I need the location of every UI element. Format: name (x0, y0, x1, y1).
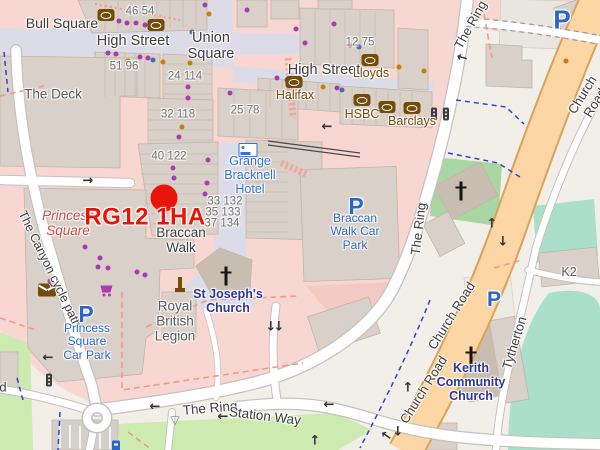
building-label-k2: K2 (561, 265, 576, 279)
poi-dot (190, 30, 195, 35)
oneway-arrow-icon: ← (378, 428, 394, 445)
street-label-the-ring-south: The Ring (182, 398, 238, 418)
parking-meter-icon (112, 441, 120, 450)
poi-dot (117, 19, 122, 24)
poi-dot (125, 21, 130, 26)
poi-dot (207, 12, 212, 17)
parking-label-princess-square: Princess Square Car Park (63, 322, 110, 362)
housenumber-25-78: 25 78 (231, 105, 260, 118)
retail-label-princess-square: Princess Square (42, 208, 94, 238)
poi-dot (205, 181, 210, 186)
poi-dot (357, 45, 362, 50)
street-label-partial-d: d (0, 381, 7, 396)
bank-label-halifax: Halifax (276, 88, 314, 102)
parking-label-braccan-walk: Braccan Walk Car Park (331, 212, 380, 252)
church-cross-icon (455, 182, 468, 201)
housenumber-46-54: 46 54 (126, 6, 155, 19)
church-label-st-josephs: St Joseph's Church (193, 287, 263, 315)
post-office-icon (38, 284, 56, 297)
housenumber-32-118: 32 118 (161, 109, 195, 122)
poi-dot (98, 256, 103, 261)
bank-icon (354, 94, 371, 106)
traffic-light-icon (443, 108, 449, 121)
poi-dot (134, 21, 139, 26)
poi-dot (143, 273, 148, 278)
map-canvas[interactable]: ▽→←←←←←↑↓↓↑↓↑↓←←←Bull SquareHigh StreetU… (0, 0, 600, 450)
poi-dot (96, 265, 101, 270)
oneway-arrow-icon: ← (324, 399, 335, 412)
oneway-arrow-icon: ← (322, 121, 333, 134)
oneway-arrow-icon: → (83, 175, 94, 188)
poi-dot (303, 41, 308, 46)
poi-dot (564, 59, 569, 64)
street-label-union-square: Union Square (188, 30, 235, 62)
bank-icon (404, 102, 421, 114)
church-cross-icon (220, 267, 233, 286)
street-label-church-road-mid: Church Road (426, 280, 479, 353)
poi-dot (114, 52, 119, 57)
street-label-the-ring-north: The Ring (452, 0, 490, 52)
oneway-arrow-icon: ↓ (498, 236, 509, 249)
housenumber-40-122: 40 122 (151, 151, 186, 164)
poi-dot (199, 216, 204, 221)
bank-label-barclays: Barclays (388, 114, 436, 128)
poi-dot (186, 85, 191, 90)
housenumber-35-133: 35 133 (205, 207, 240, 220)
housenumber-33-132: 33 132 (207, 196, 242, 209)
oneway-arrow-icon: ↑ (310, 435, 321, 448)
postcode-marker-dot (151, 185, 178, 212)
poi-dot (180, 125, 185, 130)
street-label-canyon-cycle-path: The Canyon cycle path (16, 208, 85, 329)
housenumber-24-114: 24 114 (168, 71, 202, 84)
street-label-station-way: Station Way (228, 404, 302, 428)
poi-dot (161, 60, 166, 65)
oneway-arrow-icon: ↓ (274, 321, 285, 334)
poi-dot (151, 58, 156, 63)
poi-dot (203, 3, 208, 8)
traffic-light-icon (46, 374, 52, 387)
church-cross-icon (465, 347, 478, 366)
oneway-arrow-icon: ← (455, 50, 469, 65)
building-label-royal-british-legion: Royal British Legion (155, 298, 196, 343)
poi-dot (171, 166, 176, 171)
bank-label-hsbc: HSBC (345, 107, 380, 121)
oneway-arrow-icon: ↑ (487, 218, 498, 231)
map-overlay: ▽→←←←←←↑↓↓↑↓↑↓←←←Bull SquareHigh StreetU… (0, 0, 600, 450)
poi-dot (228, 91, 233, 96)
poi-dot (294, 27, 299, 32)
poi-dot (106, 266, 111, 271)
poi-dot (188, 61, 193, 66)
poi-dot (83, 245, 88, 250)
church-label-kerith: Kerith Community Church (437, 361, 506, 403)
poi-dot (340, 88, 345, 93)
bank-icon (98, 9, 115, 21)
oneway-arrow-icon: ← (150, 401, 161, 414)
bank-icon (379, 101, 396, 113)
oneway-arrow-icon: ↑ (403, 382, 414, 395)
poi-dot (126, 59, 131, 64)
poi-dot (245, 8, 250, 13)
housenumber-37-134: 37 134 (204, 218, 239, 231)
bank-label-lloyds: Lloyds (353, 66, 389, 80)
memorial-icon (174, 277, 186, 293)
street-label-bull-square: Bull Square (26, 16, 98, 32)
postcode-label: RG12 1HA (84, 205, 205, 232)
poi-dot (203, 192, 208, 197)
poi-dot (332, 22, 337, 27)
bank-icon (148, 19, 165, 31)
oneway-arrow-icon: ← (218, 411, 229, 424)
bank-icon (362, 54, 379, 66)
building-label-the-deck: The Deck (24, 86, 82, 101)
housenumber-51-96: 51 96 (110, 61, 139, 74)
poi-dot (275, 76, 280, 81)
poi-dot (206, 158, 211, 163)
oneway-arrow-icon: ← (417, 198, 430, 213)
parking-p-princess: P (78, 302, 93, 328)
hotel-icon (239, 143, 258, 157)
poi-dot (186, 96, 191, 101)
traffic-light-icon (431, 108, 437, 121)
street-label-church-road-north: Church Road (566, 74, 600, 125)
poi-dot (348, 43, 353, 48)
poi-dot (177, 135, 182, 140)
supermarket-icon (100, 284, 115, 297)
poi-dot (422, 69, 427, 74)
parking-p-northeast: P (553, 5, 570, 34)
hotel-label-grange-bracknell: Grange Bracknell Hotel (224, 154, 275, 196)
poi-dot (321, 85, 326, 90)
give-way-icon: ▽ (170, 414, 179, 426)
parking-p-braccan: P (348, 194, 363, 220)
street-label-high-street-west: High Street (97, 33, 170, 49)
street-label-tytherton: Tytherton (500, 315, 530, 371)
street-label-braccan-walk: Braccan Walk (156, 225, 206, 255)
poi-dot (172, 176, 177, 181)
poi-dot (106, 51, 111, 56)
parking-p-east: P (487, 288, 501, 312)
oneway-arrow-icon: ← (43, 352, 54, 365)
bank-icon (286, 76, 303, 88)
poi-dot (138, 55, 143, 60)
poi-dot (397, 65, 402, 70)
poi-dot (135, 270, 140, 275)
